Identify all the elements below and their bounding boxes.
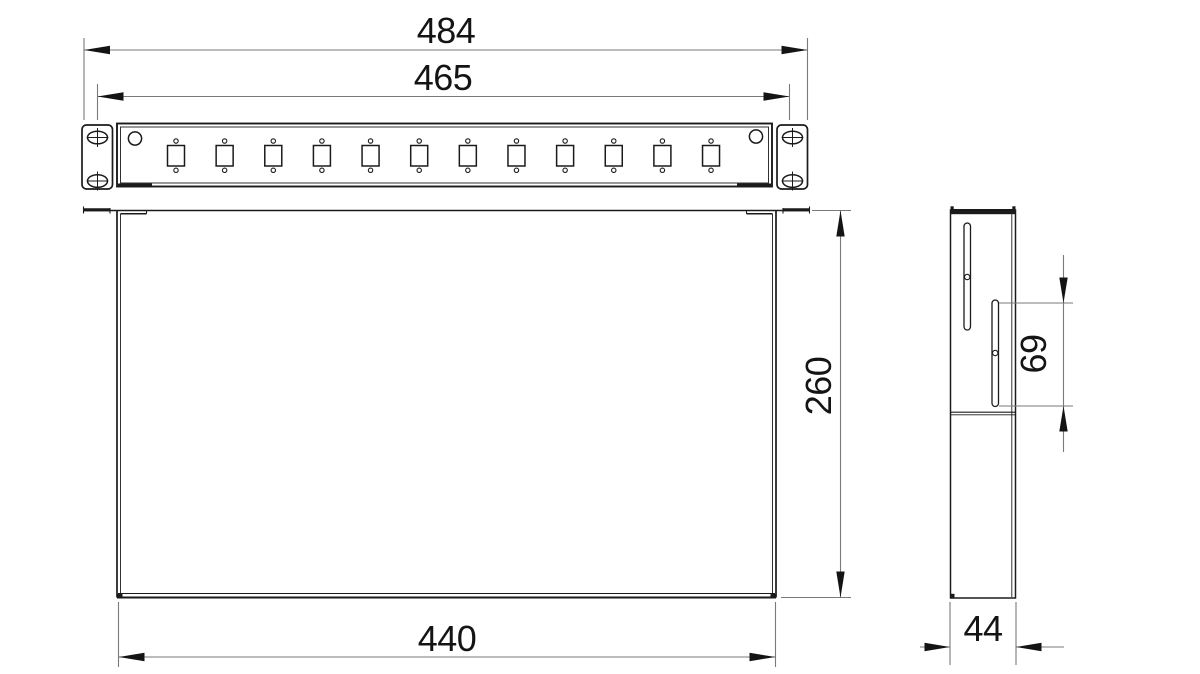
side-panel-tab [951,206,954,209]
adapter-screw-hole [466,168,470,172]
arrowhead-left [925,643,951,651]
adapter-screw-hole [271,168,275,172]
adapter-cutouts [168,139,720,173]
side-outline [951,210,1016,598]
body-width-label: 440 [418,618,477,659]
arrowhead-top [836,211,844,237]
adapter-screw-hole [320,168,324,172]
adapter-cutout [362,139,379,173]
front-view [82,124,808,191]
slot-hole [965,274,970,279]
mounting-width-label: 465 [414,57,473,98]
adapter-screw-hole [709,168,713,172]
adapter-cutout [654,139,671,173]
adapter-screw-hole [612,139,616,143]
adapter-screw-hole [612,168,616,172]
adapter-opening [459,146,476,167]
adapter-screw-hole [174,139,178,143]
dimension-side-width: 44 [920,602,1064,665]
slot-hole [993,350,998,355]
adapter-opening [411,146,428,167]
adapter-screw-hole [174,168,178,172]
adapter-opening [605,146,622,167]
adapter-opening [654,146,671,167]
arrowhead-right [782,46,808,54]
adapter-opening [216,146,233,167]
dimension-mounting-width: 465 [98,57,790,120]
adapter-cutout [605,139,622,173]
adapter-opening [557,146,574,167]
arrowhead-bottom [1059,406,1067,432]
panel-corner-tab-left [118,184,152,188]
slot-length-label: 69 [1013,334,1054,373]
body-corner-right [771,594,777,599]
adapter-opening [265,146,282,167]
adapter-screw-hole [709,139,713,143]
side-slot [992,300,999,407]
depth-label: 260 [798,357,839,416]
body-corner-left [117,594,123,599]
ear-hole [782,172,804,191]
adapter-cutout [168,139,185,173]
adapter-screw-hole [514,168,518,172]
ear-hole [87,128,109,147]
dimension-slot-length: 69 [999,255,1073,452]
adapter-screw-hole [368,168,372,172]
adapter-screw-hole [222,139,226,143]
adapter-screw-hole [320,139,324,143]
adapter-opening [703,146,720,167]
side-panel-tab [1012,206,1015,209]
dimension-depth: 260 [781,211,851,598]
arrowhead-right [750,653,776,661]
ear-hole [87,172,109,191]
adapter-screw-hole [660,168,664,172]
adapter-screw-hole [417,139,421,143]
pilot-hole-left [128,132,141,145]
adapter-screw-hole [466,139,470,143]
arrowhead-right [1016,643,1042,651]
adapter-screw-hole [222,168,226,172]
ear-hole [782,128,804,147]
adapter-cutout [557,139,574,173]
arrowhead-left [119,653,145,661]
adapter-cutout [216,139,233,173]
overall-width-label: 484 [417,10,476,51]
adapter-opening [508,146,525,167]
adapter-opening [168,146,185,167]
arrowhead-bottom [836,572,844,598]
dimension-body-width: 440 [119,602,776,667]
side-view [951,206,1016,598]
adapter-screw-hole [271,139,275,143]
rack-panel-drawing: 484 465 [0,0,1200,674]
side-corner-mark [951,594,955,598]
adapter-screw-hole [563,168,567,172]
technical-drawing-page: 484 465 [0,0,1200,674]
adapter-screw-hole [417,168,421,172]
top-view [84,207,810,599]
adapter-screw-hole [563,139,567,143]
arrowhead-top [1059,278,1067,304]
pilot-hole-right [749,130,762,143]
arrowhead-left [98,92,124,100]
adapter-screw-hole [368,139,372,143]
ear-holes [87,128,804,191]
side-slot [964,223,971,330]
adapter-cutout [265,139,282,173]
adapter-screw-hole [660,139,664,143]
adapter-cutout [703,139,720,173]
adapter-opening [313,146,330,167]
arrowhead-right [764,92,790,100]
adapter-cutout [411,139,428,173]
adapter-cutout [459,139,476,173]
adapter-opening [362,146,379,167]
adapter-cutout [508,139,525,173]
arrowhead-left [84,46,110,54]
panel-corner-tab-right [737,184,771,188]
adapter-cutout [313,139,330,173]
panel-face-outline [117,124,772,187]
adapter-screw-hole [514,139,518,143]
side-width-label: 44 [963,608,1002,649]
